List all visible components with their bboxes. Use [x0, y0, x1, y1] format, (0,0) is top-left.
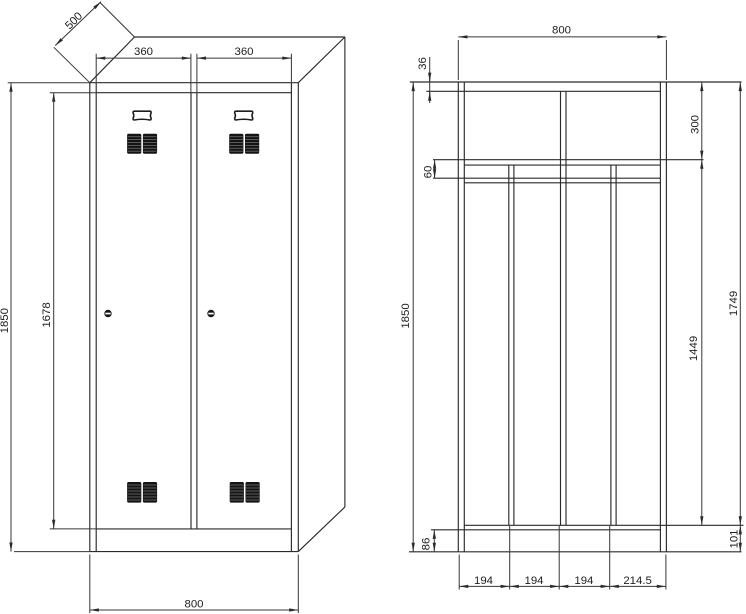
svg-text:60: 60 [423, 166, 435, 179]
svg-text:360: 360 [234, 46, 253, 58]
svg-text:86: 86 [421, 538, 433, 551]
svg-text:101: 101 [729, 529, 741, 548]
svg-text:1449: 1449 [688, 336, 700, 361]
svg-text:300: 300 [690, 115, 702, 134]
svg-text:800: 800 [552, 25, 571, 37]
svg-text:800: 800 [184, 599, 203, 611]
svg-text:1749: 1749 [728, 291, 740, 316]
svg-text:194: 194 [524, 575, 543, 587]
svg-text:1850: 1850 [0, 308, 11, 333]
svg-text:194: 194 [474, 575, 493, 587]
svg-text:36: 36 [417, 57, 429, 70]
svg-text:1850: 1850 [400, 303, 412, 328]
svg-text:500: 500 [63, 10, 85, 32]
svg-text:1678: 1678 [41, 302, 53, 327]
svg-text:214.5: 214.5 [623, 575, 652, 587]
svg-text:360: 360 [134, 46, 153, 58]
svg-text:194: 194 [574, 575, 593, 587]
